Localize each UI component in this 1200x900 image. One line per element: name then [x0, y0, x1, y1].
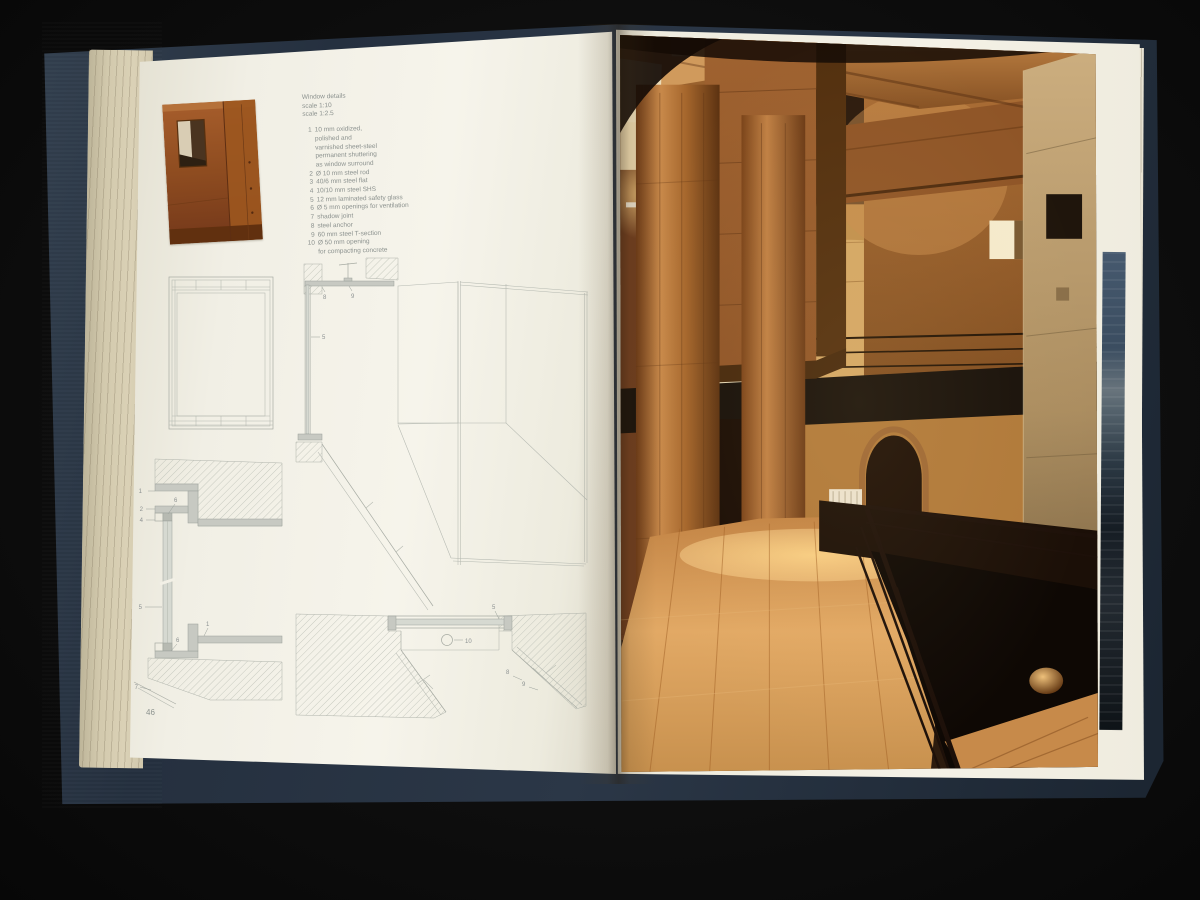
caption-heading: Window details scale 1:10 scale 1:2.5: [302, 90, 437, 120]
interior-photo-art: [620, 32, 1098, 772]
callout-1: 1: [139, 489, 143, 495]
drawing-reveal-perspective: [394, 268, 600, 572]
callout-2: 2: [140, 507, 144, 513]
next-page-sliver: [1099, 252, 1125, 730]
callout-5: 5: [139, 605, 143, 611]
callout-5: 5: [322, 335, 326, 341]
callout-8: 8: [506, 670, 510, 676]
callout-5: 5: [492, 605, 496, 611]
drawing-vertical-detail: 1 2 4 6 5 1 6 7: [130, 446, 298, 722]
interior-photograph: [620, 32, 1098, 772]
callout-6: 6: [176, 638, 180, 644]
caption-block: Window details scale 1:10 scale 1:2.5 11…: [302, 90, 441, 257]
callout-9: 9: [522, 682, 526, 688]
legend-list: 110 mm oxidized, polished and varnished …: [303, 123, 441, 257]
drawing-window-elevation: [160, 270, 284, 438]
callout-8: 8: [323, 295, 327, 301]
legend-item: 10Ø 50 mm opening for compacting concret…: [306, 236, 440, 257]
page-number: 46: [146, 708, 155, 717]
callout-6: 6: [174, 498, 178, 504]
inset-photo-art: [162, 100, 263, 245]
callout-9: 9: [351, 294, 355, 300]
left-page: Window details scale 1:10 scale 1:2.5 11…: [126, 28, 618, 780]
callout-1: 1: [206, 622, 210, 628]
callout-10: 10: [465, 639, 472, 645]
legend-item: 110 mm oxidized, polished and varnished …: [303, 123, 438, 170]
drawing-horizontal-detail: 10 5 8 9: [284, 588, 604, 744]
right-page: [612, 26, 1144, 786]
callout-4: 4: [140, 518, 144, 524]
inset-photo-rusted-steel-window: [162, 100, 263, 245]
book-photograph-scene: Window details scale 1:10 scale 1:2.5 11…: [0, 0, 1200, 900]
